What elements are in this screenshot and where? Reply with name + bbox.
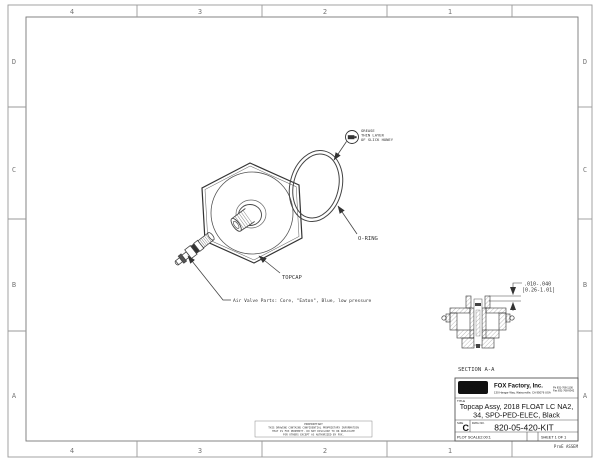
zone-right-a: A: [583, 392, 588, 400]
proprietary-note: PROPRIETARY THIS DRAWING CONTAINS CONFID…: [255, 421, 372, 437]
proprietary-line1: PROPRIETARY: [304, 422, 323, 426]
drawing-canvas: 4 3 2 1 4 3 2 1 D C B A D C B A: [0, 0, 600, 463]
proprietary-line4: FOR OTHERS EXCEPT AS AUTHORIZED BY FOX.: [283, 433, 344, 437]
zone-left-b: B: [12, 281, 16, 289]
zone-bottom-1: 1: [448, 447, 452, 455]
zone-top-4: 4: [70, 8, 74, 16]
proprietary-line3: THAT IS FOX PROPERTY. DO NOT DISCLOSE TO…: [272, 429, 355, 433]
air-valve-callout: Air Valve Parts: Core, "Eaton", Blue, lo…: [188, 256, 372, 304]
title-block: FOX FOX Factory, Inc. 130 Hangar Way, Wa…: [455, 378, 579, 449]
company-address: 130 Hangar Way, Watsonville, CA 95076 US…: [494, 391, 551, 395]
drawing-title-line2: 34, SPD-PED-ELEC, Black: [473, 411, 560, 420]
grease-note-line3: OF SLICK HONEY: [361, 137, 394, 142]
company-name: FOX Factory, Inc.: [494, 384, 543, 390]
dwg-no-value: 820-05-420-KIT: [494, 423, 554, 433]
section-view: .010-.040 [0.26-1.01] SECTION A-A: [442, 282, 555, 374]
air-valve-note: Air Valve Parts: Core, "Eaton", Blue, lo…: [233, 298, 372, 304]
plot-scale: PLOT SCALE2.00:1: [457, 436, 491, 440]
company-fax: Fax 831-768-9342: [553, 389, 575, 393]
fox-logo-text: FOX: [462, 384, 481, 394]
topcap-label: TOPCAP: [282, 275, 303, 281]
dwg-no-label: DWG NO.: [472, 421, 485, 425]
zone-top-3: 3: [198, 8, 202, 16]
oring-callout: O-RING: [338, 206, 378, 242]
topcap-callout: TOPCAP: [259, 256, 303, 281]
zone-right-d: D: [583, 58, 587, 66]
oring-label: O-RING: [358, 236, 378, 242]
zone-bottom-2: 2: [323, 447, 327, 455]
drawing-sheet: 4 3 2 1 4 3 2 1 D C B A D C B A: [0, 0, 600, 463]
zone-left-a: A: [12, 392, 17, 400]
zone-left-d: D: [12, 58, 16, 66]
footer-note: ProE ASSEM: [554, 444, 579, 449]
fox-logo: FOX: [458, 381, 488, 394]
proprietary-line2: THIS DRAWING CONTAINS CONFIDENTIAL PROPR…: [268, 426, 359, 430]
section-label: SECTION A-A: [458, 367, 495, 373]
zone-top-1: 1: [448, 8, 452, 16]
zone-right-c: C: [583, 166, 587, 174]
section-valve-core: [474, 299, 482, 348]
dim-text-mm: [0.26-1.01]: [522, 288, 555, 294]
zone-top-2: 2: [323, 8, 327, 16]
grease-callout: GREASE THIN LAYER OF SLICK HONEY: [334, 128, 394, 160]
section-dimension: [489, 283, 522, 311]
zone-bottom-4: 4: [70, 447, 74, 455]
zone-left-c: C: [12, 166, 16, 174]
zone-bottom-3: 3: [198, 447, 202, 455]
sheet-of: SHEET 1 OF 1: [541, 436, 566, 440]
valve-core: [173, 231, 216, 268]
size-value: C: [463, 423, 470, 433]
zone-right-b: B: [583, 281, 587, 289]
